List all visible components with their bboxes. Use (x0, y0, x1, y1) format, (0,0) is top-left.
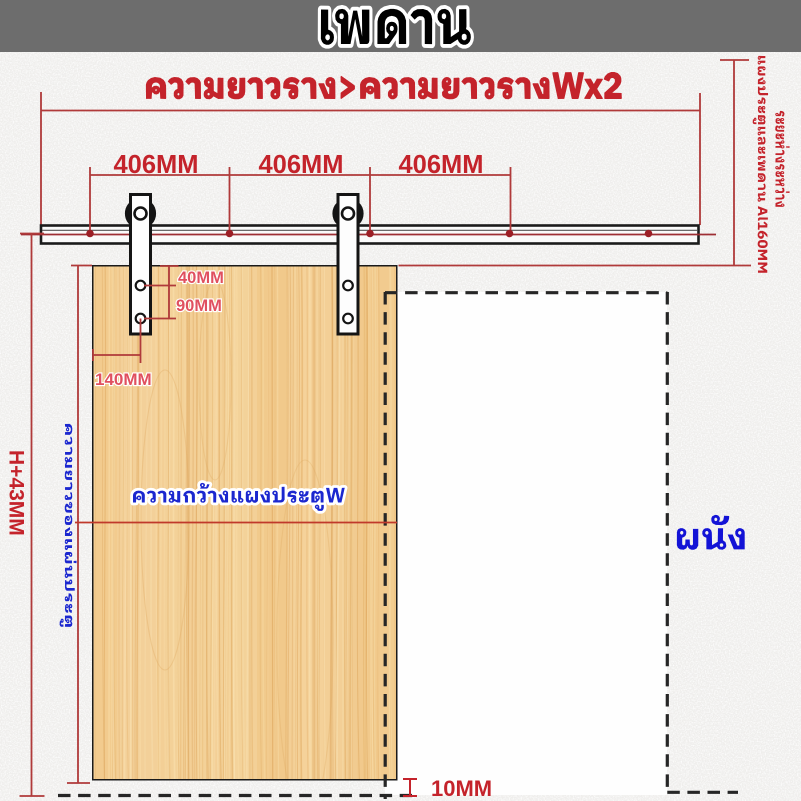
svg-text:140MM: 140MM (95, 370, 152, 389)
svg-text:10MM: 10MM (431, 776, 492, 801)
svg-text:40MM: 40MM (178, 269, 224, 287)
svg-text:90MM: 90MM (176, 297, 222, 315)
svg-text:H+43MM: H+43MM (5, 450, 28, 536)
svg-text:406MM: 406MM (113, 151, 198, 179)
svg-text:406MM: 406MM (258, 151, 343, 179)
svg-text:406MM: 406MM (398, 151, 483, 179)
